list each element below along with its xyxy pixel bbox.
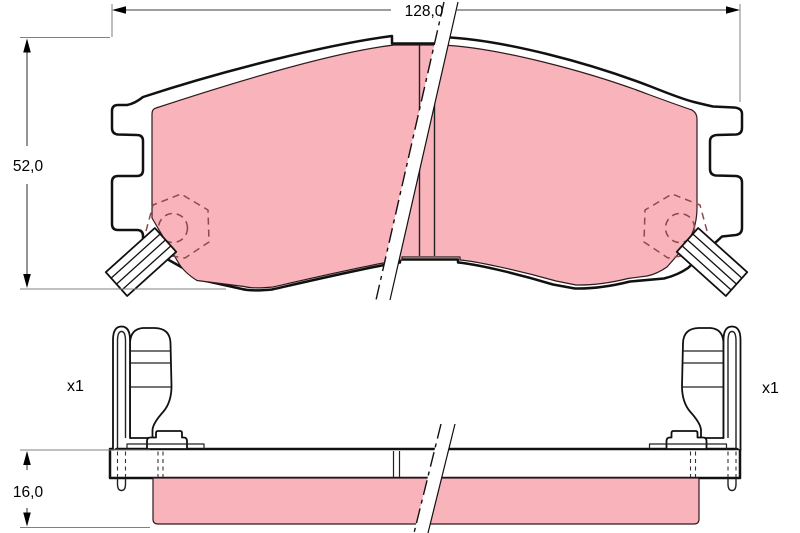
backplate-side (110, 449, 740, 478)
dim-thickness-label: 16,0 (13, 484, 44, 501)
dim-height-label: 52,0 (13, 158, 44, 175)
qty-label-left: x1 (67, 378, 84, 395)
technical-drawing-page: 128,0 52,0 16,0 x1 x1 (0, 0, 800, 533)
qty-label-right: x1 (762, 380, 779, 397)
dim-width-label: 128,0 (405, 3, 444, 20)
front-view (106, 36, 747, 296)
brake-pad-drawing: 128,0 52,0 16,0 x1 x1 (0, 0, 800, 533)
